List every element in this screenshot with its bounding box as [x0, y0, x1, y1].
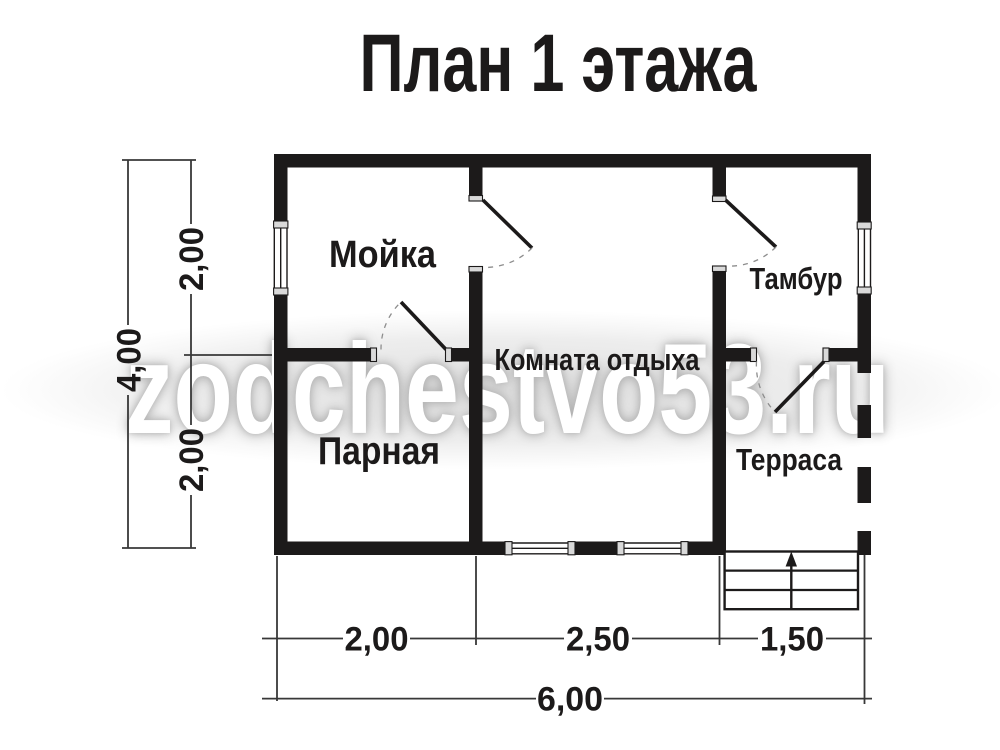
svg-text:План 1 этажа: План 1 этажа [360, 18, 758, 109]
svg-text:1,50: 1,50 [760, 621, 824, 659]
svg-text:Тамбур: Тамбур [750, 261, 843, 296]
svg-text:4,00: 4,00 [111, 328, 149, 392]
svg-text:2,00: 2,00 [173, 227, 211, 291]
svg-text:Терраса: Терраса [736, 442, 843, 477]
svg-text:2,00: 2,00 [345, 621, 409, 659]
svg-text:Мойка: Мойка [329, 234, 437, 276]
svg-text:Парная: Парная [318, 430, 440, 473]
svg-text:2,00: 2,00 [173, 428, 211, 492]
svg-text:2,50: 2,50 [566, 621, 630, 659]
svg-text:Комната отдыха: Комната отдыха [495, 343, 701, 377]
svg-text:zodchestvo53.ru: zodchestvo53.ru [125, 318, 890, 461]
svg-text:6,00: 6,00 [537, 681, 603, 719]
